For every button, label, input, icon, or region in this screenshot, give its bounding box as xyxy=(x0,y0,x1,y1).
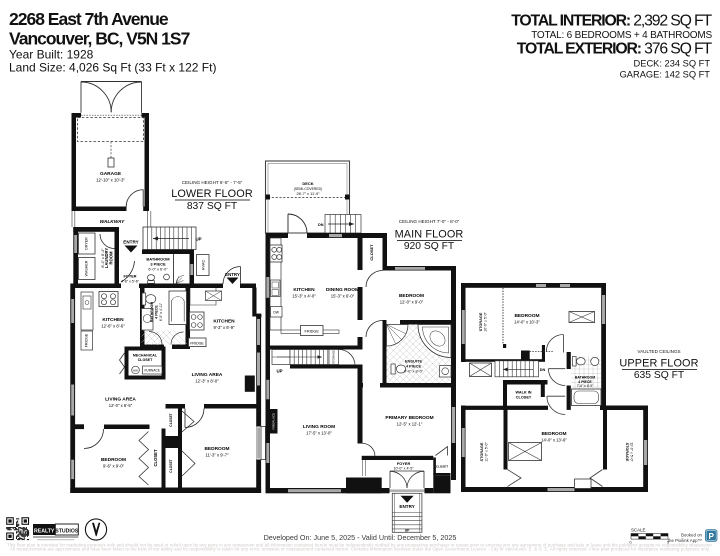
svg-text:STORAGE: STORAGE xyxy=(479,312,483,331)
svg-text:STORAGE: STORAGE xyxy=(480,442,484,461)
svg-text:BEDROOM: BEDROOM xyxy=(514,313,539,319)
svg-text:12'-0" x 6'-5": 12'-0" x 6'-5" xyxy=(109,403,133,408)
svg-text:9'-3" x 6'-9": 9'-3" x 6'-9" xyxy=(213,325,235,330)
svg-text:KITCHEN: KITCHEN xyxy=(293,287,315,293)
svg-text:FURNACE: FURNACE xyxy=(144,369,159,373)
svg-text:9'-0" x 8'-0": 9'-0" x 8'-0" xyxy=(404,370,424,374)
svg-text:FIREPLACE: FIREPLACE xyxy=(271,413,275,430)
svg-text:10'-0" x 4'-5": 10'-0" x 4'-5" xyxy=(394,467,415,471)
svg-text:3 PIECE: 3 PIECE xyxy=(150,262,166,267)
svg-text:4 PIECE: 4 PIECE xyxy=(406,364,422,369)
svg-text:VAULTED CEILINGS: VAULTED CEILINGS xyxy=(637,349,680,354)
svg-text:KITCHEN: KITCHEN xyxy=(102,317,124,323)
svg-text:TOTAL EXTERIOR: 376 SQ FT: TOTAL EXTERIOR: 376 SQ FT xyxy=(517,41,713,58)
svg-text:12'-3" x 8'-0": 12'-3" x 8'-0" xyxy=(195,379,219,384)
svg-text:14'-0" x 13'-6": 14'-0" x 13'-6" xyxy=(541,438,567,443)
svg-text:SCALE: SCALE xyxy=(631,528,645,533)
svg-text:BATHROOM: BATHROOM xyxy=(150,302,154,322)
svg-text:CEILING HEIGHT 7'-0" - 8'-0": CEILING HEIGHT 7'-0" - 8'-0" xyxy=(399,219,460,224)
svg-text:STORAGE: STORAGE xyxy=(625,443,629,462)
svg-text:10'-9" x 5'-0": 10'-9" x 5'-0" xyxy=(484,311,488,331)
svg-text:11'-9" x 5'-0": 11'-9" x 5'-0" xyxy=(485,442,489,462)
svg-text:UP: UP xyxy=(277,369,283,374)
svg-text:FRIDGE: FRIDGE xyxy=(305,330,320,334)
svg-text:Vancouver, BC, V5N 1S7: Vancouver, BC, V5N 1S7 xyxy=(9,29,190,49)
svg-text:920 SQ FT: 920 SQ FT xyxy=(404,241,455,252)
svg-text:635 SQ FT: 635 SQ FT xyxy=(634,370,685,381)
svg-text:FRIDGE: FRIDGE xyxy=(85,333,89,347)
svg-text:17'-5" x 13'-0": 17'-5" x 13'-0" xyxy=(306,431,332,436)
svg-text:TOTAL INTERIOR: 2,392 SQ FT: TOTAL INTERIOR: 2,392 SQ FT xyxy=(511,13,712,30)
svg-text:ENTRY: ENTRY xyxy=(123,240,138,245)
svg-text:BEDROOM: BEDROOM xyxy=(399,293,424,299)
svg-text:837 SQ FT: 837 SQ FT xyxy=(187,201,238,212)
svg-text:LIVING ROOM: LIVING ROOM xyxy=(303,424,335,430)
svg-text:8'-4" x 6'-4": 8'-4" x 6'-4" xyxy=(101,248,105,268)
svg-text:UP: UP xyxy=(196,237,202,242)
svg-text:6'-9" x 4'-11": 6'-9" x 4'-11" xyxy=(159,302,163,321)
svg-text:LIVING AREA: LIVING AREA xyxy=(192,372,223,378)
svg-text:DINING ROOM: DINING ROOM xyxy=(326,287,359,293)
svg-text:Land Size: 4,026 Sq Ft (33 Ft: Land Size: 4,026 Sq Ft (33 Ft x 122 Ft) xyxy=(9,61,216,75)
svg-text:CLOSET: CLOSET xyxy=(436,464,448,468)
svg-text:6'-0" x 6'-0": 6'-0" x 6'-0" xyxy=(148,268,168,272)
svg-text:BEDROOM: BEDROOM xyxy=(101,457,126,463)
svg-text:STUDIOS: STUDIOS xyxy=(55,528,79,534)
svg-text:WALK IN: WALK IN xyxy=(515,391,531,395)
svg-text:PRIMARY BEDROOM: PRIMARY BEDROOM xyxy=(385,415,433,421)
svg-text:REALTY: REALTY xyxy=(34,528,55,534)
svg-text:LOWER FLOOR: LOWER FLOOR xyxy=(171,188,253,200)
svg-text:GARAGE: GARAGE xyxy=(100,171,122,177)
svg-text:7'-6" x 6'-9": 7'-6" x 6'-9" xyxy=(577,384,594,388)
svg-text:DECK: 234 SQ FT: DECK: 234 SQ FT xyxy=(634,59,711,69)
svg-text:9'-6" x 9'-0": 9'-6" x 9'-0" xyxy=(103,464,125,469)
svg-text:12'-10" x 10'-3": 12'-10" x 10'-3" xyxy=(96,178,125,183)
svg-text:0: 0 xyxy=(630,541,632,545)
svg-text:CLOSET: CLOSET xyxy=(169,413,173,426)
svg-text:Developed On: June 5, 2025 - V: Developed On: June 5, 2025 - Valid Until… xyxy=(264,533,457,542)
svg-text:KITCHEN: KITCHEN xyxy=(213,319,235,325)
svg-text:12'-0" x 9'-0": 12'-0" x 9'-0" xyxy=(400,300,424,305)
svg-text:WALKWAY: WALKWAY xyxy=(100,219,125,225)
svg-text:CLOSET: CLOSET xyxy=(153,449,158,466)
svg-text:ENTRY: ENTRY xyxy=(399,504,414,509)
svg-text:FRIDGE: FRIDGE xyxy=(190,342,204,346)
svg-text:BEDROOM: BEDROOM xyxy=(541,431,566,437)
svg-text:CLOSET: CLOSET xyxy=(369,244,374,261)
svg-text:ENTRY: ENTRY xyxy=(225,272,240,277)
svg-text:FOYER: FOYER xyxy=(397,461,411,466)
svg-text:26'-7" x 11'-9": 26'-7" x 11'-9" xyxy=(296,192,320,196)
svg-text:WASHER: WASHER xyxy=(85,260,89,276)
svg-text:2268 East 7th Avenue: 2268 East 7th Avenue xyxy=(9,9,169,29)
svg-text:LIVING AREA: LIVING AREA xyxy=(105,397,136,403)
svg-text:CEILING HEIGHT 6'-5" - 7'-5": CEILING HEIGHT 6'-5" - 7'-5" xyxy=(182,180,243,185)
svg-text:DN: DN xyxy=(540,368,546,372)
svg-text:11'-3" x 9'-7": 11'-3" x 9'-7" xyxy=(205,453,229,458)
svg-text:11'-9" x 5'-0": 11'-9" x 5'-0" xyxy=(630,442,634,462)
svg-text:DW: DW xyxy=(273,311,279,315)
svg-text:15'-3" x 6'-0": 15'-3" x 6'-0" xyxy=(331,294,355,299)
svg-text:15'-3" x 4'-0": 15'-3" x 4'-0" xyxy=(292,294,316,299)
svg-text:CLOSET: CLOSET xyxy=(169,459,173,472)
svg-text:Booked on: Booked on xyxy=(681,533,703,538)
svg-text:TOTAL: 6 BEDROOMS + 4 BATHROO: TOTAL: 6 BEDROOMS + 4 BATHROOMS xyxy=(531,30,712,41)
svg-text:CLOSET: CLOSET xyxy=(516,396,532,400)
svg-text:Year Built: 1928: Year Built: 1928 xyxy=(9,48,94,62)
svg-text:BEDROOM: BEDROOM xyxy=(204,446,229,452)
svg-text:DECK: DECK xyxy=(302,181,313,186)
svg-text:All measurements are approxima: All measurements are approximate and hav… xyxy=(10,547,710,552)
svg-text:12'-5" x 12'-1": 12'-5" x 12'-1" xyxy=(397,422,423,427)
svg-text:P: P xyxy=(708,532,714,541)
svg-text:the Pixilink App™: the Pixilink App™ xyxy=(668,538,702,543)
svg-text:HVAC: HVAC xyxy=(201,259,206,270)
svg-text:MAIN FLOOR: MAIN FLOOR xyxy=(395,228,464,240)
svg-text:DRYER: DRYER xyxy=(85,237,89,250)
svg-text:4 PIECE: 4 PIECE xyxy=(155,305,159,319)
svg-text:STORAGE: STORAGE xyxy=(332,350,336,364)
svg-text:14'-0" x 10'-3": 14'-0" x 10'-3" xyxy=(514,320,540,325)
svg-text:HW: HW xyxy=(133,369,138,373)
svg-text:MECHANICAL: MECHANICAL xyxy=(133,354,158,358)
svg-text:GARAGE: 142 SQ FT: GARAGE: 142 SQ FT xyxy=(620,70,711,80)
svg-text:CLOSET: CLOSET xyxy=(138,358,153,362)
svg-text:12'-6" x 8'-6": 12'-6" x 8'-6" xyxy=(101,324,125,329)
svg-text:ROOM: ROOM xyxy=(109,251,114,265)
svg-text:FOYER: FOYER xyxy=(123,275,136,279)
svg-text:(SEMI-COVERED): (SEMI-COVERED) xyxy=(294,187,322,191)
svg-text:DN: DN xyxy=(318,223,324,227)
svg-text:UPPER FLOOR: UPPER FLOOR xyxy=(619,357,698,369)
